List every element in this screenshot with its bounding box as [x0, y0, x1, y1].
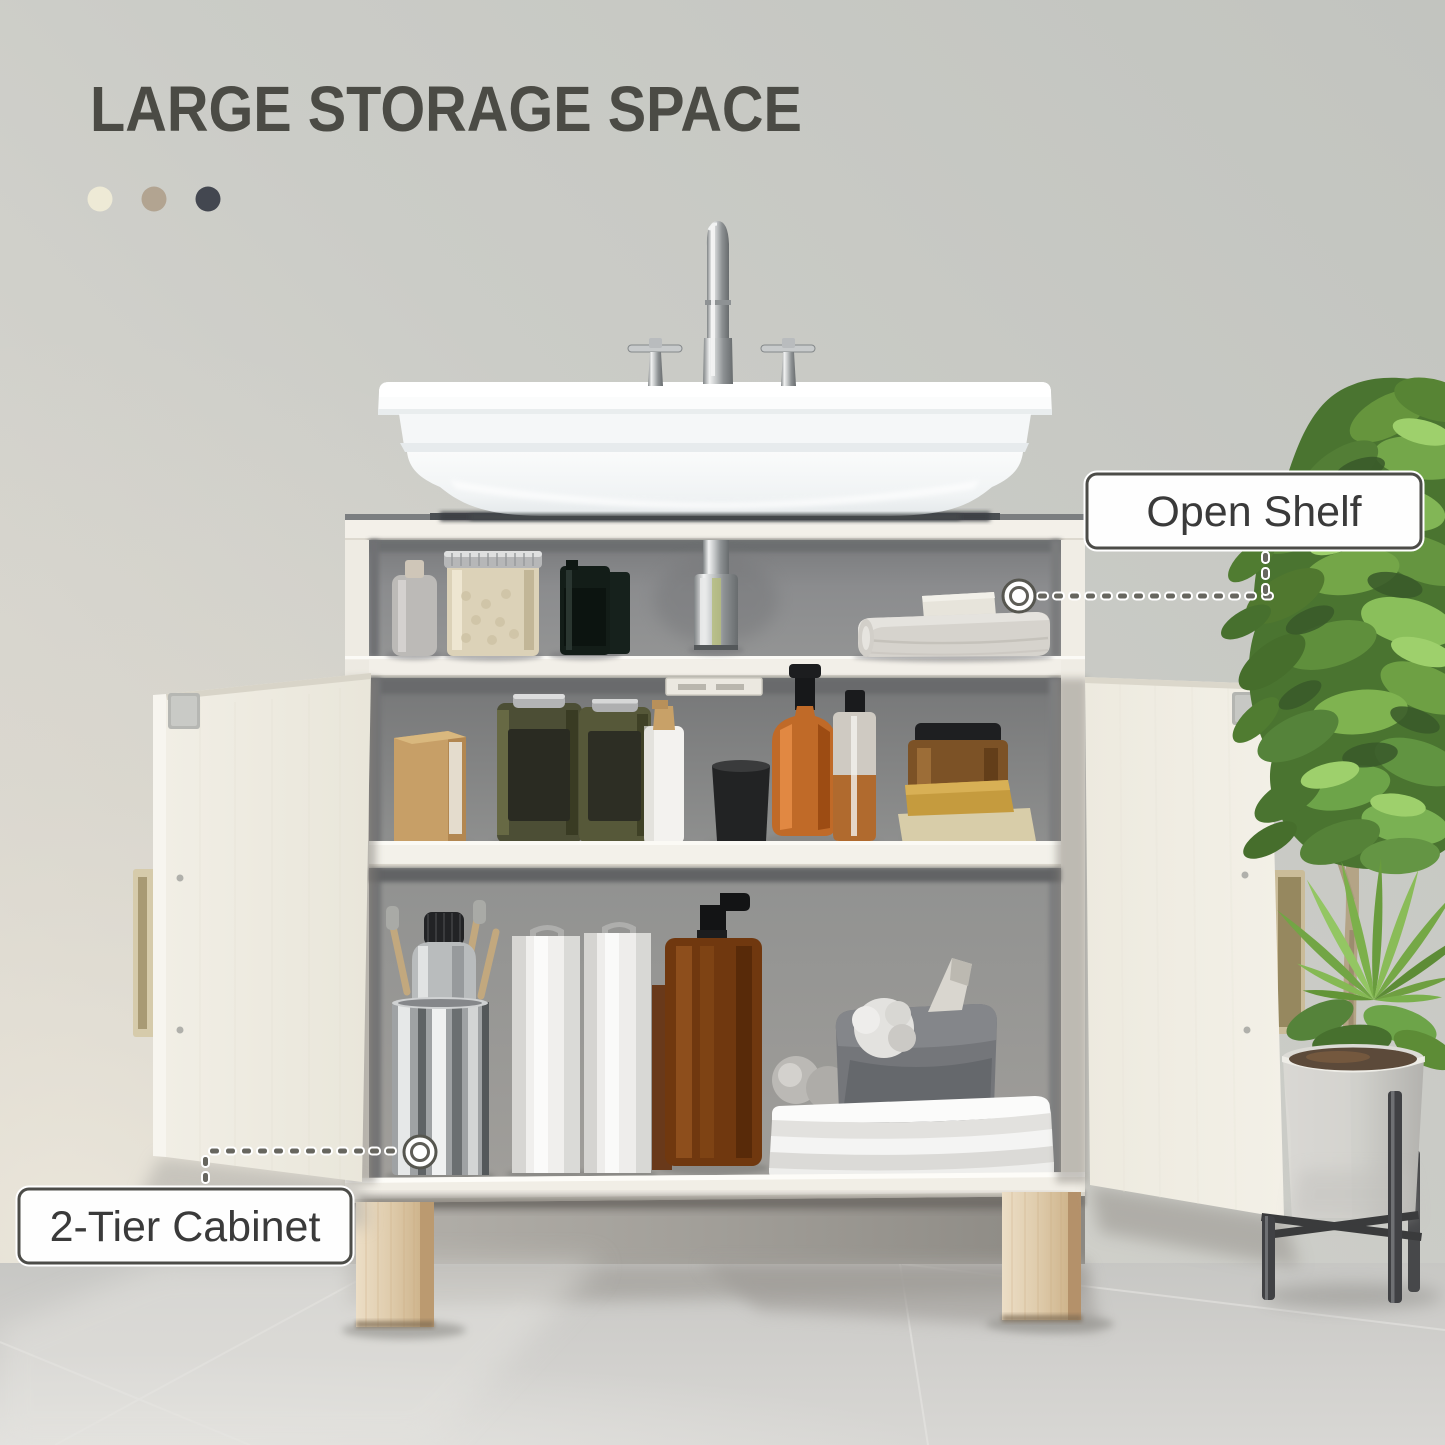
svg-text:Open Shelf: Open Shelf [1146, 488, 1362, 536]
svg-text:2-Tier Cabinet: 2-Tier Cabinet [50, 1203, 321, 1251]
svg-text:LARGE STORAGE SPACE: LARGE STORAGE SPACE [90, 73, 802, 145]
